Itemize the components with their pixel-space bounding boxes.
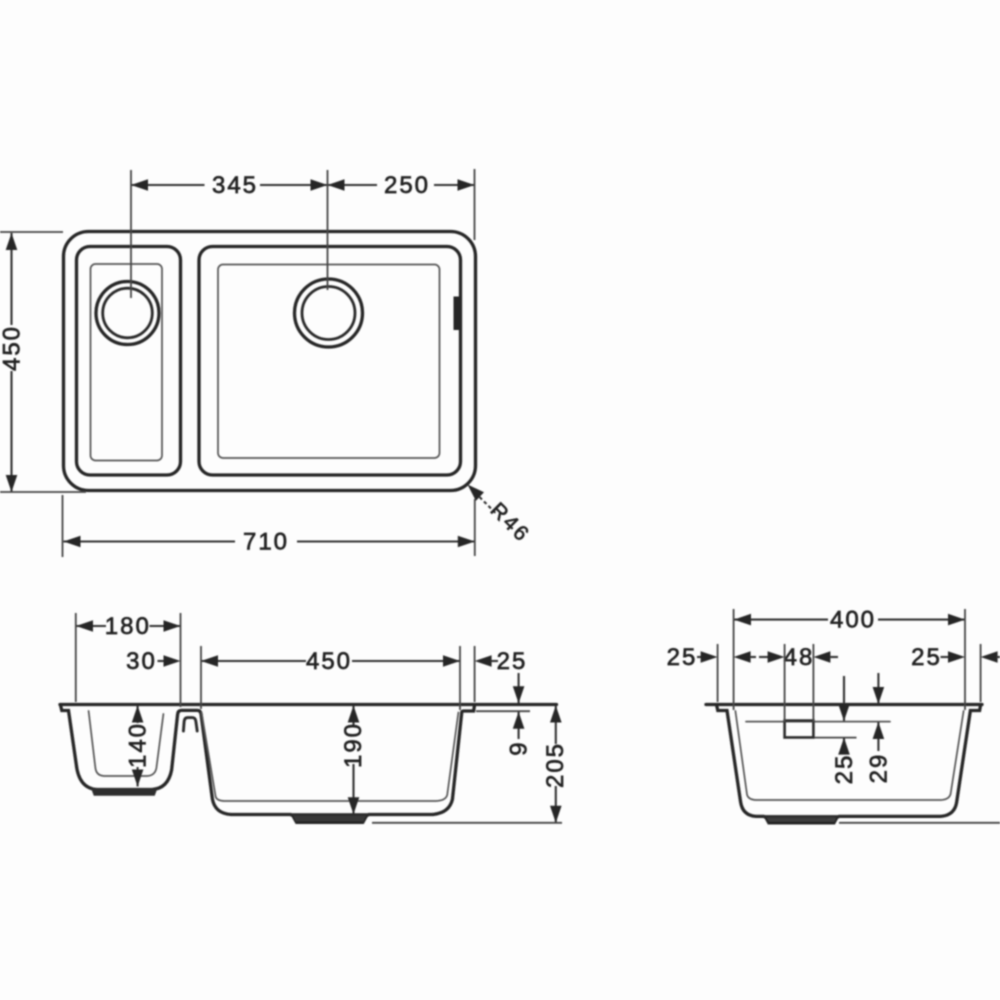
svg-text:9: 9 [506,740,533,755]
svg-text:250: 250 [384,172,430,199]
svg-text:29: 29 [865,753,892,784]
svg-text:25: 25 [831,754,858,785]
svg-text:345: 345 [212,172,258,199]
svg-text:48: 48 [784,644,815,671]
svg-text:450: 450 [0,325,26,371]
svg-text:710: 710 [243,529,289,556]
svg-text:25: 25 [667,644,698,671]
svg-text:140: 140 [124,722,151,768]
svg-text:180: 180 [105,613,151,640]
svg-text:30: 30 [126,648,157,675]
svg-text:25: 25 [911,644,942,671]
svg-text:450: 450 [306,648,352,675]
svg-text:205: 205 [542,742,569,788]
svg-text:25: 25 [497,648,528,675]
svg-text:190: 190 [340,722,367,768]
svg-text:400: 400 [830,607,876,634]
